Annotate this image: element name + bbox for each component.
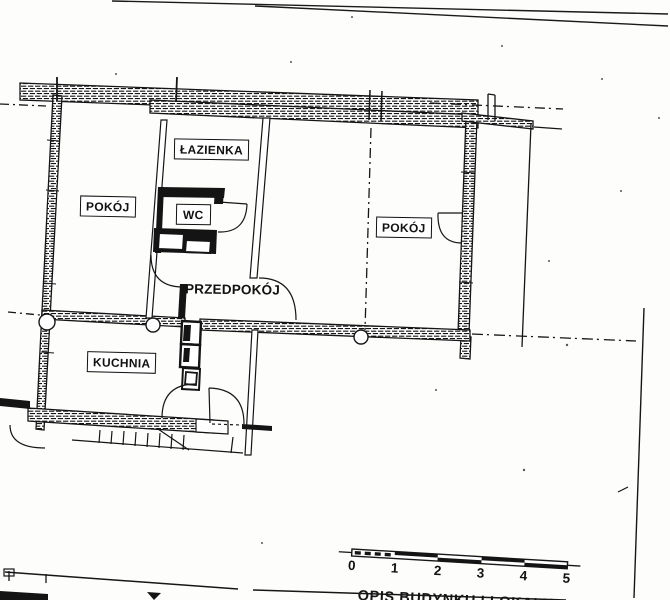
room-label-pokoj-left: POKÓJ [80,195,136,217]
room-label-lazienka: ŁAZIENKA [174,138,249,160]
room-label-pokoj-right: POKÓJ [376,217,432,239]
exterior-walls [20,83,533,433]
scale-tick-4: 4 [519,568,528,583]
room-label-wc: WC [176,204,211,226]
duct-shaft [180,321,201,390]
scale-tick-5: 5 [562,571,571,586]
entrance-door-right [209,388,244,424]
scale-tick-0: 0 [348,558,356,573]
right-room-door [438,213,463,243]
scale-bar: 0 1 2 3 4 5 [338,548,581,586]
floor-plan-page: 0 1 2 3 4 5 POKÓJ ŁAZIENKA WC PRZEDPOKÓJ… [0,0,670,600]
wc-door [218,202,247,232]
scale-tick-1: 1 [391,560,400,575]
scale-tick-3: 3 [476,565,485,580]
floor-plan-drawing: 0 1 2 3 4 5 [0,0,670,600]
room-label-kuchnia: KUCHNIA [87,351,157,374]
scan-artifact-lines [112,1,668,26]
scale-tick-2: 2 [433,563,441,578]
room-label-przedpokoj: PRZEDPOKÓJ [185,282,280,297]
